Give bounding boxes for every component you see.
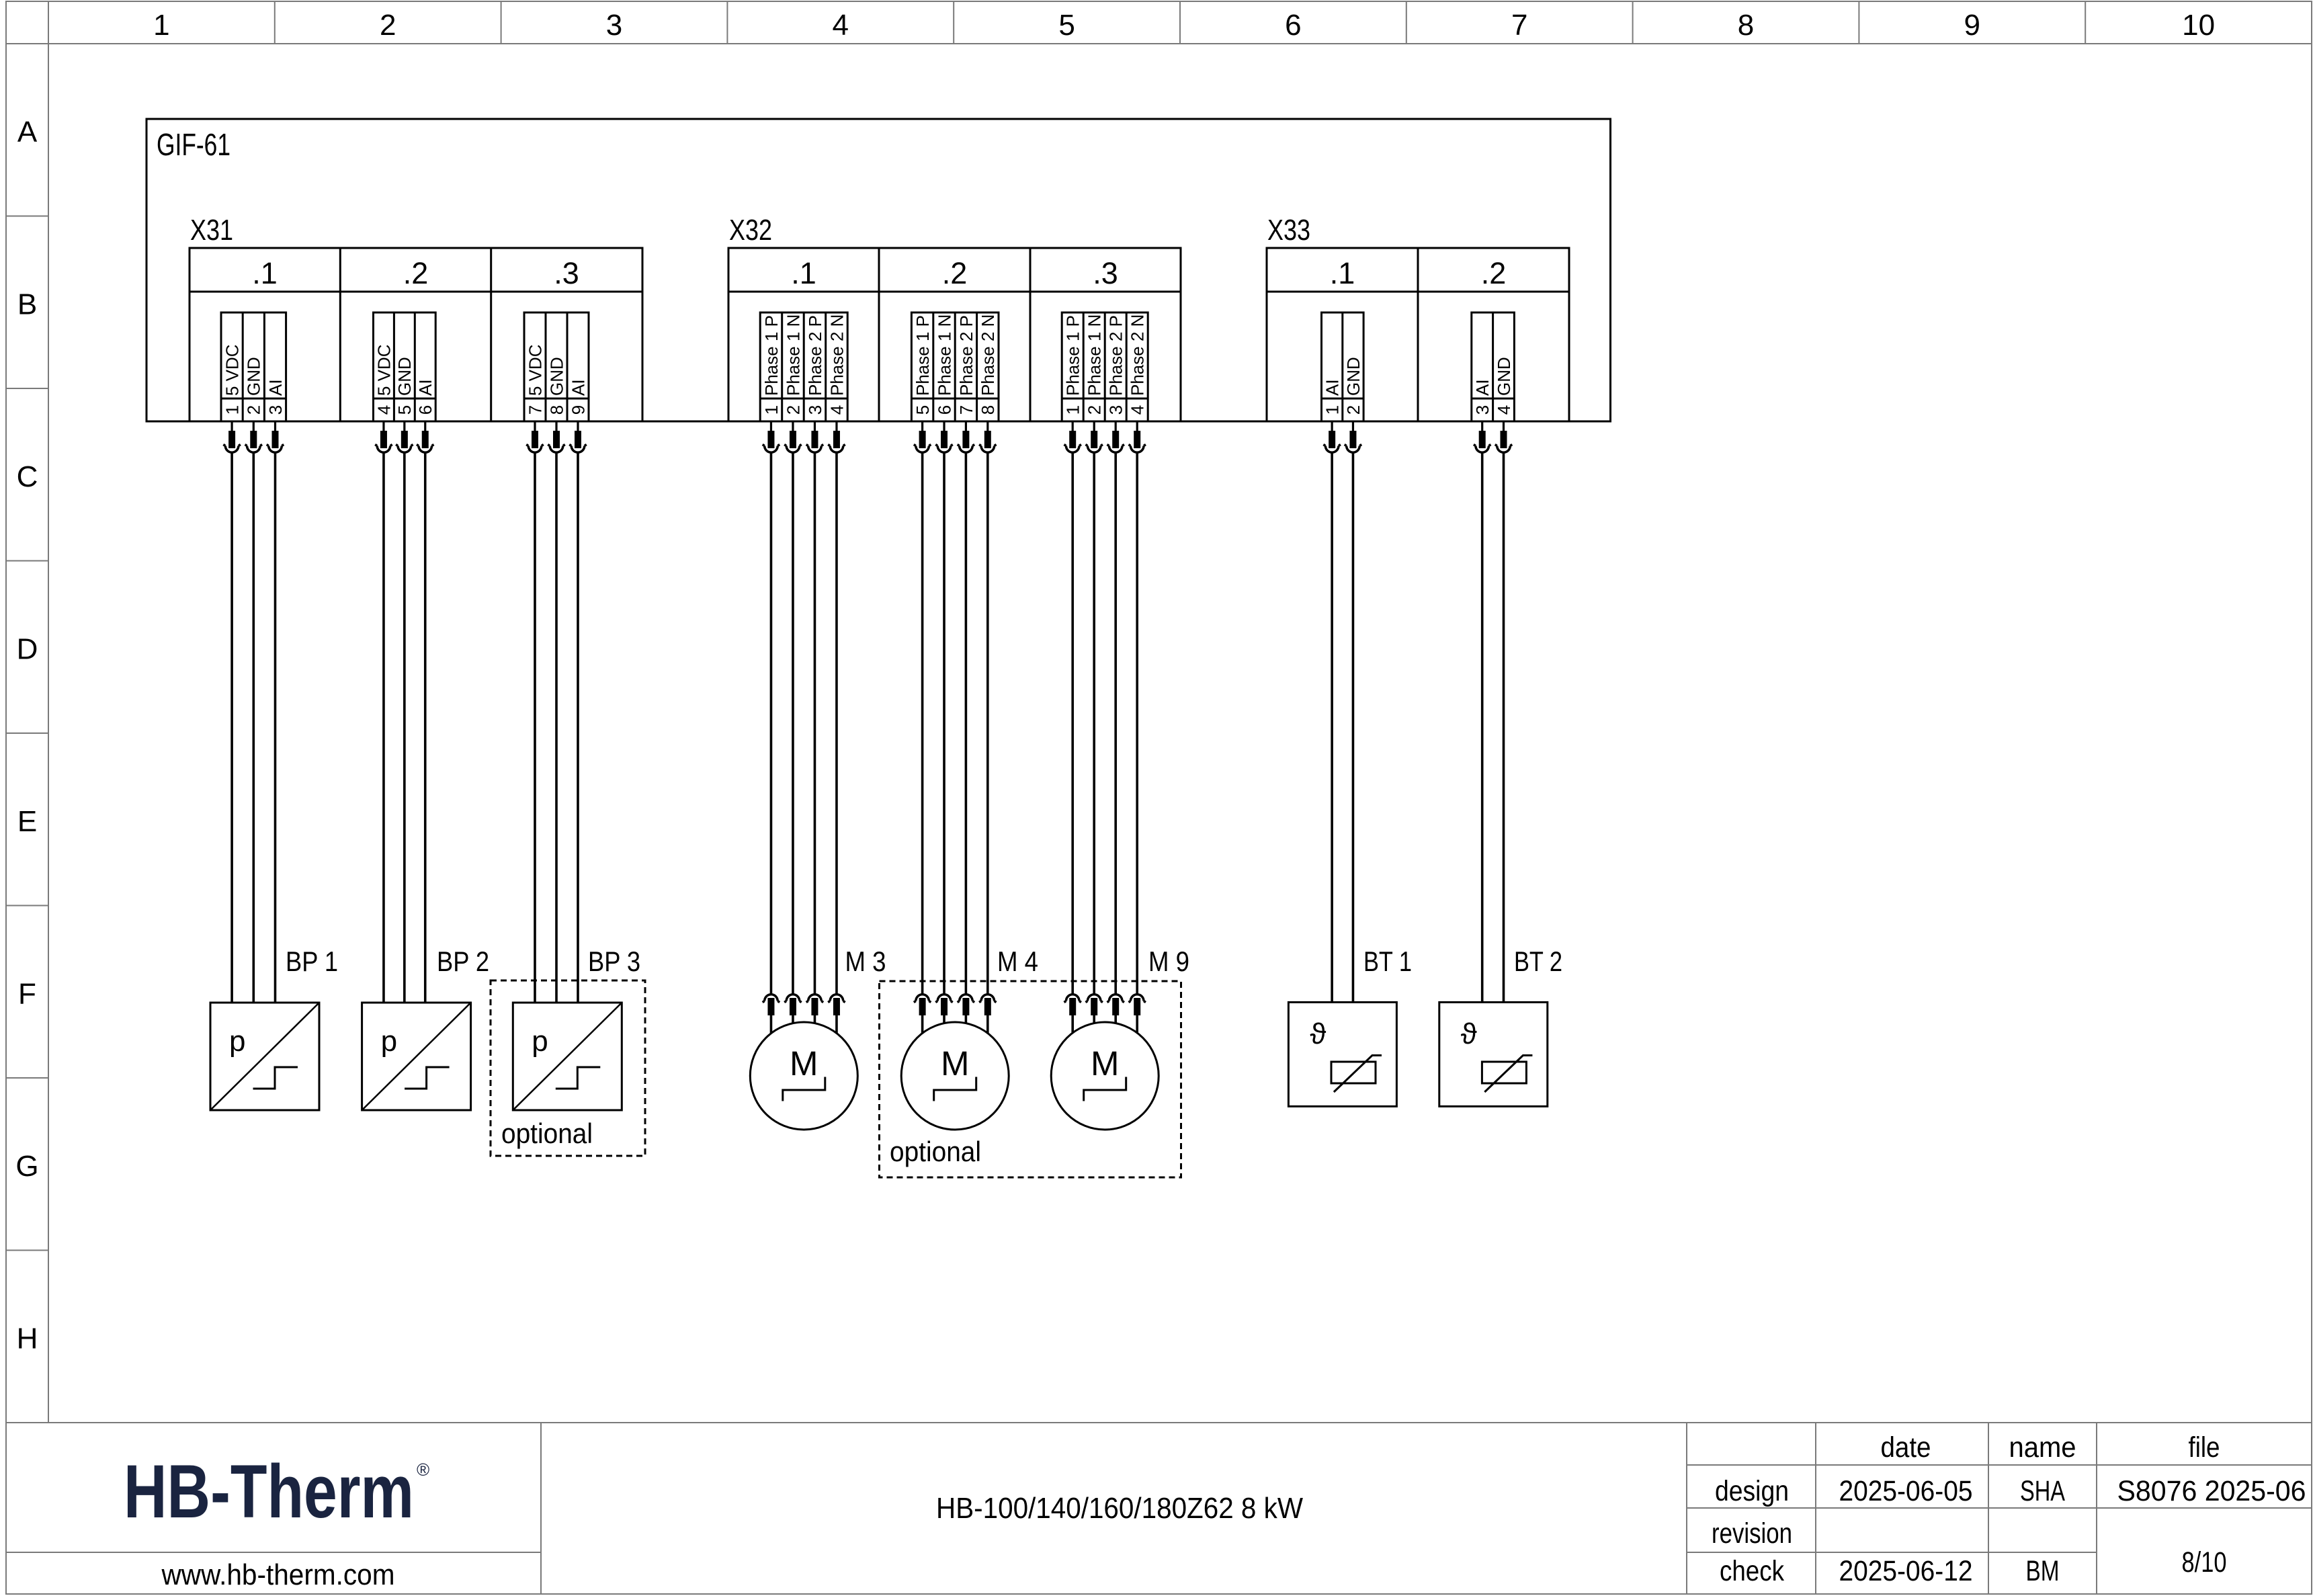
svg-text:2025-06-05: 2025-06-05 <box>1839 1475 1973 1507</box>
svg-text:8: 8 <box>1738 9 1754 42</box>
svg-text:Phase 2 P: Phase 2 P <box>805 315 825 396</box>
svg-text:BP 3: BP 3 <box>588 946 640 977</box>
svg-text:1: 1 <box>222 405 242 415</box>
svg-text:ϑ: ϑ <box>1310 1017 1326 1050</box>
svg-text:X33: X33 <box>1267 214 1310 247</box>
svg-text:Phase 1 N: Phase 1 N <box>1085 314 1105 396</box>
svg-text:.1: .1 <box>1330 256 1355 290</box>
svg-text:M 4: M 4 <box>997 946 1038 977</box>
svg-text:D: D <box>17 632 38 665</box>
svg-text:S8076 2025-06: S8076 2025-06 <box>2117 1475 2306 1507</box>
svg-text:®: ® <box>417 1460 429 1480</box>
svg-text:9: 9 <box>568 405 588 415</box>
svg-text:M: M <box>1091 1044 1119 1083</box>
svg-text:GIF-61: GIF-61 <box>157 127 230 162</box>
svg-text:Phase 1 N: Phase 1 N <box>934 314 954 396</box>
svg-text:name: name <box>2009 1431 2076 1464</box>
svg-text:H: H <box>17 1322 38 1355</box>
svg-text:G: G <box>15 1150 38 1183</box>
svg-text:4: 4 <box>827 405 847 415</box>
svg-text:BT 1: BT 1 <box>1363 946 1412 977</box>
svg-text:2: 2 <box>1343 405 1363 415</box>
svg-text:Phase 2 N: Phase 2 N <box>827 314 847 396</box>
svg-text:2: 2 <box>1085 405 1105 415</box>
svg-text:check: check <box>1720 1555 1784 1587</box>
svg-text:Phase 1 P: Phase 1 P <box>1063 315 1083 396</box>
svg-text:1: 1 <box>153 9 169 42</box>
svg-text:5 VDC: 5 VDC <box>525 344 545 396</box>
svg-text:AI: AI <box>568 379 588 396</box>
svg-text:.3: .3 <box>554 256 579 290</box>
svg-text:GND: GND <box>394 357 415 396</box>
svg-text:.2: .2 <box>1481 256 1507 290</box>
svg-text:BM: BM <box>2026 1555 2060 1587</box>
svg-text:6: 6 <box>415 405 435 415</box>
svg-text:5: 5 <box>394 405 415 415</box>
svg-text:design: design <box>1715 1475 1789 1507</box>
svg-text:AI: AI <box>1472 379 1492 396</box>
svg-text:GND: GND <box>546 357 566 396</box>
svg-text:8: 8 <box>546 405 566 415</box>
svg-text:M: M <box>790 1044 818 1083</box>
svg-text:.3: .3 <box>1093 256 1118 290</box>
svg-text:.1: .1 <box>791 256 816 290</box>
svg-text:p: p <box>532 1025 548 1058</box>
svg-text:6: 6 <box>934 405 954 415</box>
svg-text:Phase 2 P: Phase 2 P <box>1106 315 1126 396</box>
svg-text:5 VDC: 5 VDC <box>374 344 394 396</box>
svg-text:AI: AI <box>265 379 286 396</box>
svg-text:HB-Therm: HB-Therm <box>124 1450 414 1534</box>
svg-text:www.hb-therm.com: www.hb-therm.com <box>161 1558 395 1591</box>
svg-text:p: p <box>229 1025 245 1058</box>
svg-text:Phase 1 N: Phase 1 N <box>783 314 803 396</box>
svg-text:3: 3 <box>1106 405 1126 415</box>
svg-text:M 9: M 9 <box>1148 946 1189 977</box>
svg-text:2: 2 <box>380 9 396 42</box>
svg-text:optional: optional <box>890 1136 981 1167</box>
svg-text:8/10: 8/10 <box>2182 1546 2227 1579</box>
svg-text:4: 4 <box>1494 405 1514 415</box>
svg-text:9: 9 <box>1964 9 1980 42</box>
svg-text:5 VDC: 5 VDC <box>222 344 242 396</box>
svg-text:6: 6 <box>1285 9 1301 42</box>
svg-text:ϑ: ϑ <box>1461 1017 1477 1050</box>
svg-text:F: F <box>18 977 36 1010</box>
svg-text:Phase 2 P: Phase 2 P <box>956 315 976 396</box>
svg-text:4: 4 <box>374 405 394 415</box>
svg-text:optional: optional <box>501 1118 593 1149</box>
svg-text:5: 5 <box>1058 9 1075 42</box>
svg-text:5: 5 <box>913 405 933 415</box>
svg-text:1: 1 <box>1322 405 1343 415</box>
svg-text:3: 3 <box>805 405 825 415</box>
svg-text:.2: .2 <box>942 256 968 290</box>
svg-text:date: date <box>1881 1431 1931 1464</box>
svg-text:AI: AI <box>1322 379 1343 396</box>
svg-text:7: 7 <box>1511 9 1527 42</box>
svg-text:E: E <box>17 805 37 838</box>
svg-text:.1: .1 <box>252 256 278 290</box>
svg-text:GND: GND <box>1494 357 1514 396</box>
svg-text:4: 4 <box>1128 405 1148 415</box>
svg-text:BP 1: BP 1 <box>286 946 338 977</box>
svg-text:2: 2 <box>244 405 264 415</box>
svg-text:SHA: SHA <box>2020 1475 2065 1507</box>
svg-text:Phase 2 N: Phase 2 N <box>1128 314 1148 396</box>
svg-text:.2: .2 <box>403 256 429 290</box>
svg-text:B: B <box>17 288 37 321</box>
svg-text:M 3: M 3 <box>845 946 886 977</box>
svg-text:GND: GND <box>1343 357 1363 396</box>
svg-text:X31: X31 <box>190 214 233 247</box>
svg-text:GND: GND <box>244 357 264 396</box>
svg-text:revision: revision <box>1712 1517 1792 1550</box>
svg-text:C: C <box>17 460 38 493</box>
svg-text:p: p <box>381 1025 397 1058</box>
svg-text:1: 1 <box>1063 405 1083 415</box>
svg-text:Phase 1 P: Phase 1 P <box>761 315 782 396</box>
svg-text:3: 3 <box>606 9 622 42</box>
svg-text:3: 3 <box>265 405 286 415</box>
svg-text:10: 10 <box>2182 9 2215 42</box>
svg-text:Phase 2 N: Phase 2 N <box>978 314 998 396</box>
svg-text:BP 2: BP 2 <box>437 946 489 977</box>
svg-text:2: 2 <box>783 405 803 415</box>
svg-text:AI: AI <box>415 379 435 396</box>
svg-text:3: 3 <box>1472 405 1492 415</box>
svg-text:8: 8 <box>978 405 998 415</box>
svg-text:2025-06-12: 2025-06-12 <box>1839 1555 1973 1587</box>
svg-text:7: 7 <box>956 405 976 415</box>
svg-text:M: M <box>941 1044 969 1083</box>
svg-text:7: 7 <box>525 405 545 415</box>
svg-text:A: A <box>17 116 38 149</box>
svg-text:Phase 1 P: Phase 1 P <box>913 315 933 396</box>
svg-text:HB-100/140/160/180Z62 8 kW: HB-100/140/160/180Z62 8 kW <box>936 1492 1303 1525</box>
svg-text:BT 2: BT 2 <box>1514 946 1562 977</box>
svg-text:1: 1 <box>761 405 782 415</box>
svg-text:4: 4 <box>833 9 849 42</box>
svg-text:X32: X32 <box>729 214 772 247</box>
svg-text:file: file <box>2189 1431 2220 1464</box>
